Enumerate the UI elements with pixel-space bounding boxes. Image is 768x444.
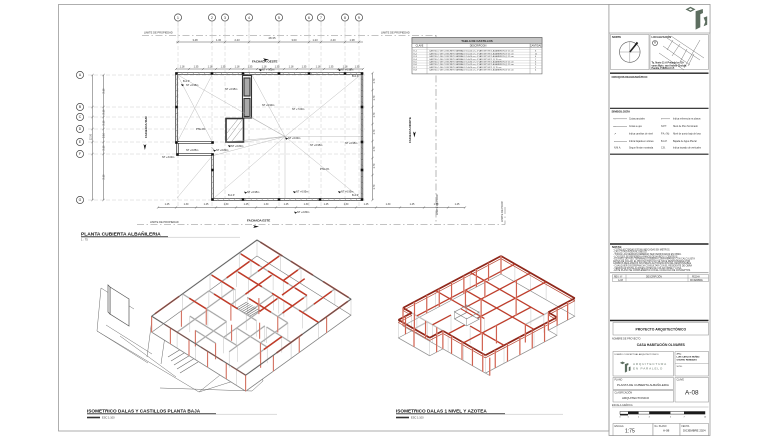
svg-text:3.00: 3.00 [291,38,297,42]
svg-text:F: F [79,152,81,156]
svg-text:Indica trazado de verticales: Indica trazado de verticales [673,146,702,149]
svg-text:1.70: 1.70 [373,129,376,134]
svg-text:A-08: A-08 [663,429,670,433]
svg-text:1.30: 1.30 [386,203,391,206]
svg-text:G: G [79,198,82,202]
svg-text:CROQUIS DIAGRAMÁTICO: CROQUIS DIAGRAMÁTICO [612,74,649,79]
svg-text:4: 4 [248,16,250,20]
svg-text:1.38: 1.38 [349,38,355,42]
svg-text:FACHADA ESTE: FACHADA ESTE [247,219,270,223]
svg-text:Cotas a ejes: Cotas a ejes [629,125,643,128]
svg-text:1.30: 1.30 [224,203,229,206]
svg-text:LIMITE DE PROPIEDAD: LIMITE DE PROPIEDAD [144,31,173,35]
svg-text:- ESTE PLANO SE COMPLEMENTA CO: - ESTE PLANO SE COMPLEMENTA CON EL CATAL… [613,269,691,272]
svg-text:DISEÑO CONCEPTUAL ARQUITECTONI: DISEÑO CONCEPTUAL ARQUITECTONICO [615,353,659,356]
svg-text:NOMBRE DE PROYECTO: NOMBRE DE PROYECTO [612,337,641,340]
svg-text:PLANO: PLANO [615,379,623,382]
svg-text:Tu. Norte 11-A Privada los Oli: Tu. Norte 11-A Privada los Oli- [652,62,685,65]
svg-text:REV. N°: REV. N° [614,276,622,278]
svg-text:1.18: 1.18 [235,66,240,69]
svg-text:7: 7 [320,16,322,20]
svg-text:1.30: 1.30 [344,203,349,206]
svg-text:28.35: 28.35 [269,36,276,40]
svg-text:ESC 1:100: ESC 1:100 [411,416,424,420]
svg-text:NORTE: NORTE [612,35,621,39]
svg-text:1.35: 1.35 [275,66,280,69]
svg-text:1.18: 1.18 [316,66,321,69]
svg-text:ISOMETRICO DALAS Y CASTILLOS P: ISOMETRICO DALAS Y CASTILLOS PLANTA BAJA [87,409,201,414]
svg-text:B.A.P.: B.A.P. [661,140,668,143]
svg-text:NT +6.95m: NT +6.95m [296,191,308,194]
svg-text:2.10: 2.10 [103,120,106,125]
svg-text:1.18: 1.18 [180,66,185,69]
svg-text:1.70: 1.70 [373,184,376,189]
svg-text:NT +3.00m: NT +3.00m [162,156,174,159]
svg-text:P.A. (%): P.A. (%) [661,132,669,135]
svg-text:A-08: A-08 [618,279,624,282]
svg-text:1.30: 1.30 [264,203,269,206]
svg-text:9: 9 [358,16,360,20]
svg-text:ISOMETRICO DALAS 1 NIVEL Y AZO: ISOMETRICO DALAS 1 NIVEL Y AZOTEA [396,409,487,414]
svg-text:1.30: 1.30 [216,38,222,42]
svg-text:S.P.E.: S.P.E. [677,366,683,368]
svg-text:NOTAS:: NOTAS: [612,245,622,249]
svg-text:OSORIO RENDANO: OSORIO RENDANO [677,358,698,361]
svg-text:Puebla, PUEBLA C.P.: Puebla, PUEBLA C.P. [652,67,675,70]
svg-text:1.35: 1.35 [355,66,360,69]
svg-text:DICIEMBRE: DICIEMBRE [690,280,703,282]
svg-text:NT +6.95m: NT +6.95m [186,84,198,87]
svg-text:TABLA DE CASTILLOS: TABLA DE CASTILLOS [461,39,493,43]
svg-text:Bajada de Agua Pluvial: Bajada de Agua Pluvial [673,140,697,143]
svg-text:N.P.T.: N.P.T. [661,126,667,128]
svg-text:FECHA: FECHA [692,275,700,278]
svg-text:1.18: 1.18 [289,66,294,69]
svg-text:ESCALA: ESCALA [615,425,625,428]
svg-text:←: ← [614,141,616,143]
svg-text:CASTILLO DE CONCRETO ARMADO 1: CASTILLO DE CONCRETO ARMADO 15x15 cm, 4 … [429,69,514,72]
svg-text:8: 8 [344,16,346,20]
svg-text:1.35: 1.35 [194,66,199,69]
svg-text:vares Mpio. san Andres Cholula: vares Mpio. san Andres Cholula [652,64,687,67]
svg-text:NT +6.85m: NT +6.85m [186,149,198,152]
svg-text:ESCALA GRÁFICA: ESCALA GRÁFICA [612,404,633,407]
svg-text:Indica referencia en planos: Indica referencia en planos [673,117,701,120]
svg-text:Nivel de punto bajo de losa: Nivel de punto bajo de losa [673,132,701,135]
svg-text:C.B.: C.B. [661,147,666,149]
svg-text:FACHADA SUR: FACHADA SUR [144,115,148,138]
svg-text:12.50: 12.50 [90,133,93,140]
svg-text:B.A.P.: B.A.P. [228,194,235,197]
svg-text:1.18: 1.18 [208,66,213,69]
svg-text:1.70: 1.70 [373,78,376,83]
svg-text:Cotas parciales: Cotas parciales [629,117,646,120]
svg-text:NT +6.60m: NT +6.60m [288,137,300,140]
svg-text:1.35: 1.35 [329,66,334,69]
svg-text:FECHA: FECHA [682,425,690,428]
svg-text:↗: ↗ [614,132,616,135]
svg-text:1.45: 1.45 [165,203,170,206]
svg-text:2.10: 2.10 [103,88,106,93]
svg-text:1.45: 1.45 [410,203,415,206]
svg-text:Nivel de Piso Terminado: Nivel de Piso Terminado [673,125,698,128]
svg-text:NT +6.80m: NT +6.80m [231,145,243,148]
svg-text:1.45: 1.45 [324,203,329,206]
svg-text:2.10: 2.10 [103,145,106,150]
svg-text:1.30: 1.30 [304,203,309,206]
svg-text:2.40: 2.40 [330,38,336,42]
svg-text:LIMITE DE PROPIEDAD: LIMITE DE PROPIEDAD [381,31,410,35]
svg-text:1.23: 1.23 [312,38,318,42]
svg-text:3.48: 3.48 [192,38,198,42]
svg-text:1.35: 1.35 [302,66,307,69]
svg-text:NT +7.05m: NT +7.05m [262,69,274,72]
svg-text:CANTIDAD: CANTIDAD [530,44,542,47]
svg-text:Indica cambios de nivel: Indica cambios de nivel [629,133,653,135]
svg-text:NT +2.80m: NT +2.80m [297,211,309,214]
svg-text:1.30: 1.30 [184,203,189,206]
svg-text:1.70: 1.70 [373,146,376,151]
svg-text:A-08: A-08 [685,390,699,397]
svg-text:1.70: 1.70 [373,112,376,117]
svg-text:2.43: 2.43 [234,38,240,42]
svg-text:2.10: 2.10 [103,174,106,179]
svg-text:ARQUITECTONICO: ARQUITECTONICO [622,396,650,400]
svg-text:PROYECTO ARQUITECTÓNICO: PROYECTO ARQUITECTÓNICO [635,326,686,331]
svg-text:FACHADA NORTE: FACHADA NORTE [408,117,412,143]
svg-text:NT +6.90m: NT +6.90m [262,104,274,107]
svg-text:1.45: 1.45 [204,203,209,206]
svg-text:2: 2 [211,16,213,20]
svg-text:1.45: 1.45 [244,203,249,206]
svg-text:2.10: 2.10 [103,109,106,114]
svg-text:1.45: 1.45 [455,203,460,206]
svg-text:PTE 2%: PTE 2% [196,128,206,131]
svg-text:CLAVE: CLAVE [416,44,424,47]
svg-text:DICIEMBRE 2024: DICIEMBRE 2024 [683,429,706,433]
svg-text:2.10: 2.10 [103,132,106,137]
svg-text:NT +6.95m: NT +6.95m [310,144,322,147]
svg-text:CLAVE: CLAVE [677,379,685,382]
svg-text:ARQUITECTURA: ARQUITECTURA [633,362,667,366]
svg-text:Indica bajada en azotea: Indica bajada en azotea [629,140,654,143]
svg-text:1: 1 [177,16,179,20]
svg-text:SIMBOLOGÍA: SIMBOLOGÍA [612,109,632,114]
svg-text:ARQ.: ARQ. [677,353,683,356]
svg-text:1:75: 1:75 [625,429,635,435]
svg-text:B.A.P.: B.A.P. [352,194,359,197]
svg-text:LIMITE DE PROP.: LIMITE DE PROP. [500,201,504,222]
svg-text:1.35: 1.35 [248,66,253,69]
svg-text:NT +6.95m: NT +6.95m [225,88,237,91]
svg-text:DESCRIPCION: DESCRIPCION [470,44,487,47]
svg-text:NT +6.95m: NT +6.95m [345,142,357,145]
svg-text:NT +6.95m: NT +6.95m [247,191,259,194]
svg-text:Segun flexion mostrada: Segun flexion mostrada [629,146,654,149]
svg-text:B.A.P.: B.A.P. [352,75,359,78]
svg-text:5: 5 [278,16,280,20]
svg-text:PLANTA DE CUBIERTA ALBAÑILERIA: PLANTA DE CUBIERTA ALBAÑILERIA [617,382,669,387]
svg-text:1.30: 1.30 [434,203,439,206]
svg-text:1.70: 1.70 [373,163,376,168]
svg-text:N.M.A.: N.M.A. [614,146,621,149]
svg-text:EN PARALELO: EN PARALELO [633,367,663,371]
svg-text:NT +6.95m: NT +6.95m [341,69,353,72]
svg-text:1.70: 1.70 [373,95,376,100]
svg-text:LUIS CARLOS NUÑEZ: LUIS CARLOS NUÑEZ [677,356,701,359]
svg-text:1 : 75: 1 : 75 [81,238,88,242]
svg-text:NT +6.80m: NT +6.80m [216,149,228,152]
svg-text:B.A.P.: B.A.P. [183,80,190,83]
svg-text:PTE 2%: PTE 2% [320,168,330,171]
svg-text:No. PLANO: No. PLANO [655,425,667,428]
svg-text:CASA HABITACIÓN OLIVARES: CASA HABITACIÓN OLIVARES [637,342,686,347]
svg-text:6: 6 [308,16,310,20]
svg-text:3: 3 [224,16,226,20]
svg-text:DESCRIPCIÓN: DESCRIPCIÓN [646,275,662,278]
svg-text:1.45: 1.45 [364,203,369,206]
svg-text:LIMITE DE PROPIEDAD: LIMITE DE PROPIEDAD [150,220,179,224]
svg-text:CLASIFICACIÓN: CLASIFICACIÓN [615,392,633,395]
svg-text:NT +7.00m: NT +7.00m [292,108,304,111]
svg-text:1.35: 1.35 [221,66,226,69]
svg-text:1.45: 1.45 [284,203,289,206]
svg-text:ESC 1:100: ESC 1:100 [102,416,115,420]
